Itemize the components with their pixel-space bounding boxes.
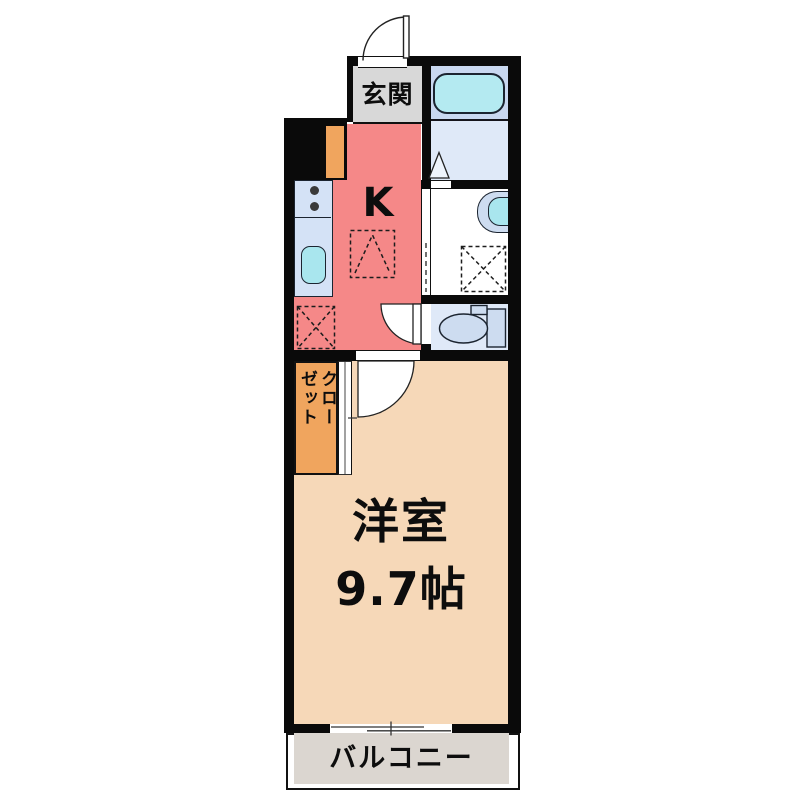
wash-basin-icon [477, 191, 508, 233]
bathtub-icon [433, 73, 505, 114]
wall-toilet-top [421, 295, 521, 304]
entrance-door-arc-icon [363, 17, 407, 61]
closet-label-line1: クロー [317, 370, 337, 470]
closet-label: クロー ゼット [297, 370, 337, 470]
entrance-threshold [358, 56, 407, 68]
bath-door-threshold [431, 180, 451, 189]
label-kitchen: K [356, 182, 400, 224]
wall-right [508, 56, 521, 733]
floor-plan: 玄関 K 洋室 9.7帖 バルコニー クロー ゼット [0, 0, 800, 800]
entrance-door-leaf [404, 16, 410, 58]
label-entrance: 玄関 [353, 82, 422, 108]
label-balcony: バルコニー [294, 745, 509, 773]
sliding-window [330, 724, 452, 733]
room-toilet [431, 304, 508, 353]
shoe-cabinet [324, 124, 346, 180]
label-room-size: 9.7帖 [294, 565, 508, 613]
toilet-door-opening [421, 304, 431, 344]
closet-label-line2: ゼット [297, 370, 317, 470]
wall-entrance-bath [422, 56, 431, 180]
wall-room-bottom-left [284, 724, 330, 733]
stove-section [295, 181, 331, 218]
stove-burner-icon [310, 186, 319, 195]
wall-left [284, 118, 294, 733]
room-door-threshold [356, 350, 420, 361]
kitchen-counter [294, 180, 333, 297]
stove-burner-icon [310, 202, 319, 211]
label-room-name: 洋室 [294, 498, 508, 547]
closet-doors [338, 361, 352, 475]
washroom-sliding-door [421, 189, 431, 295]
kitchen-sink-icon [301, 246, 326, 284]
wall-room-bottom-right [452, 724, 521, 733]
room-bath-floor [431, 121, 508, 180]
wash-basin-bowl-icon [488, 197, 508, 226]
